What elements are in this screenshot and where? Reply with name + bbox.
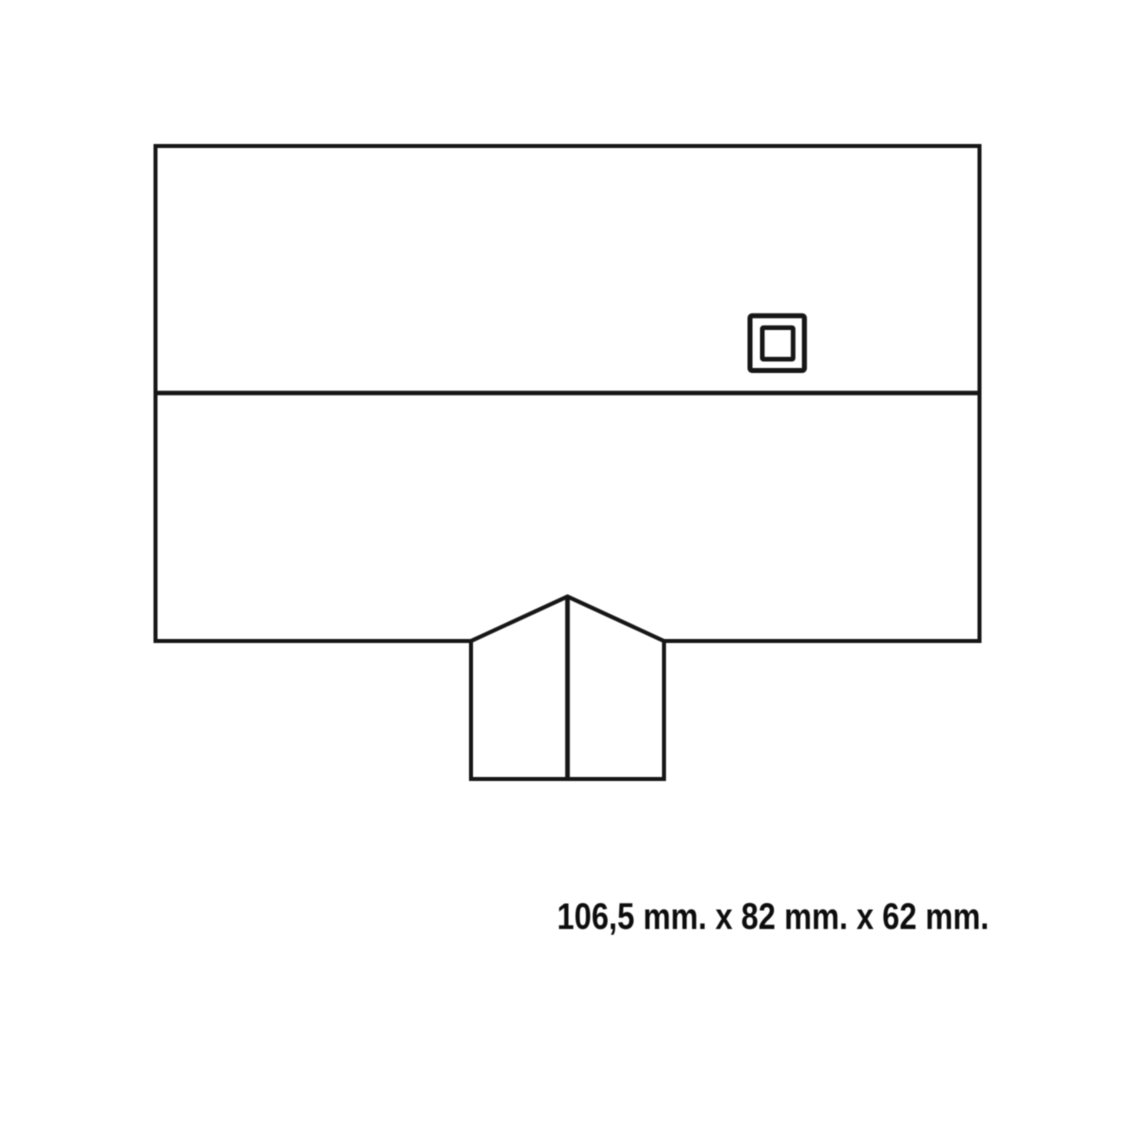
svg-text:106,5 mm. x 82 mm. x 62 mm.: 106,5 mm. x 82 mm. x 62 mm. (557, 896, 989, 937)
